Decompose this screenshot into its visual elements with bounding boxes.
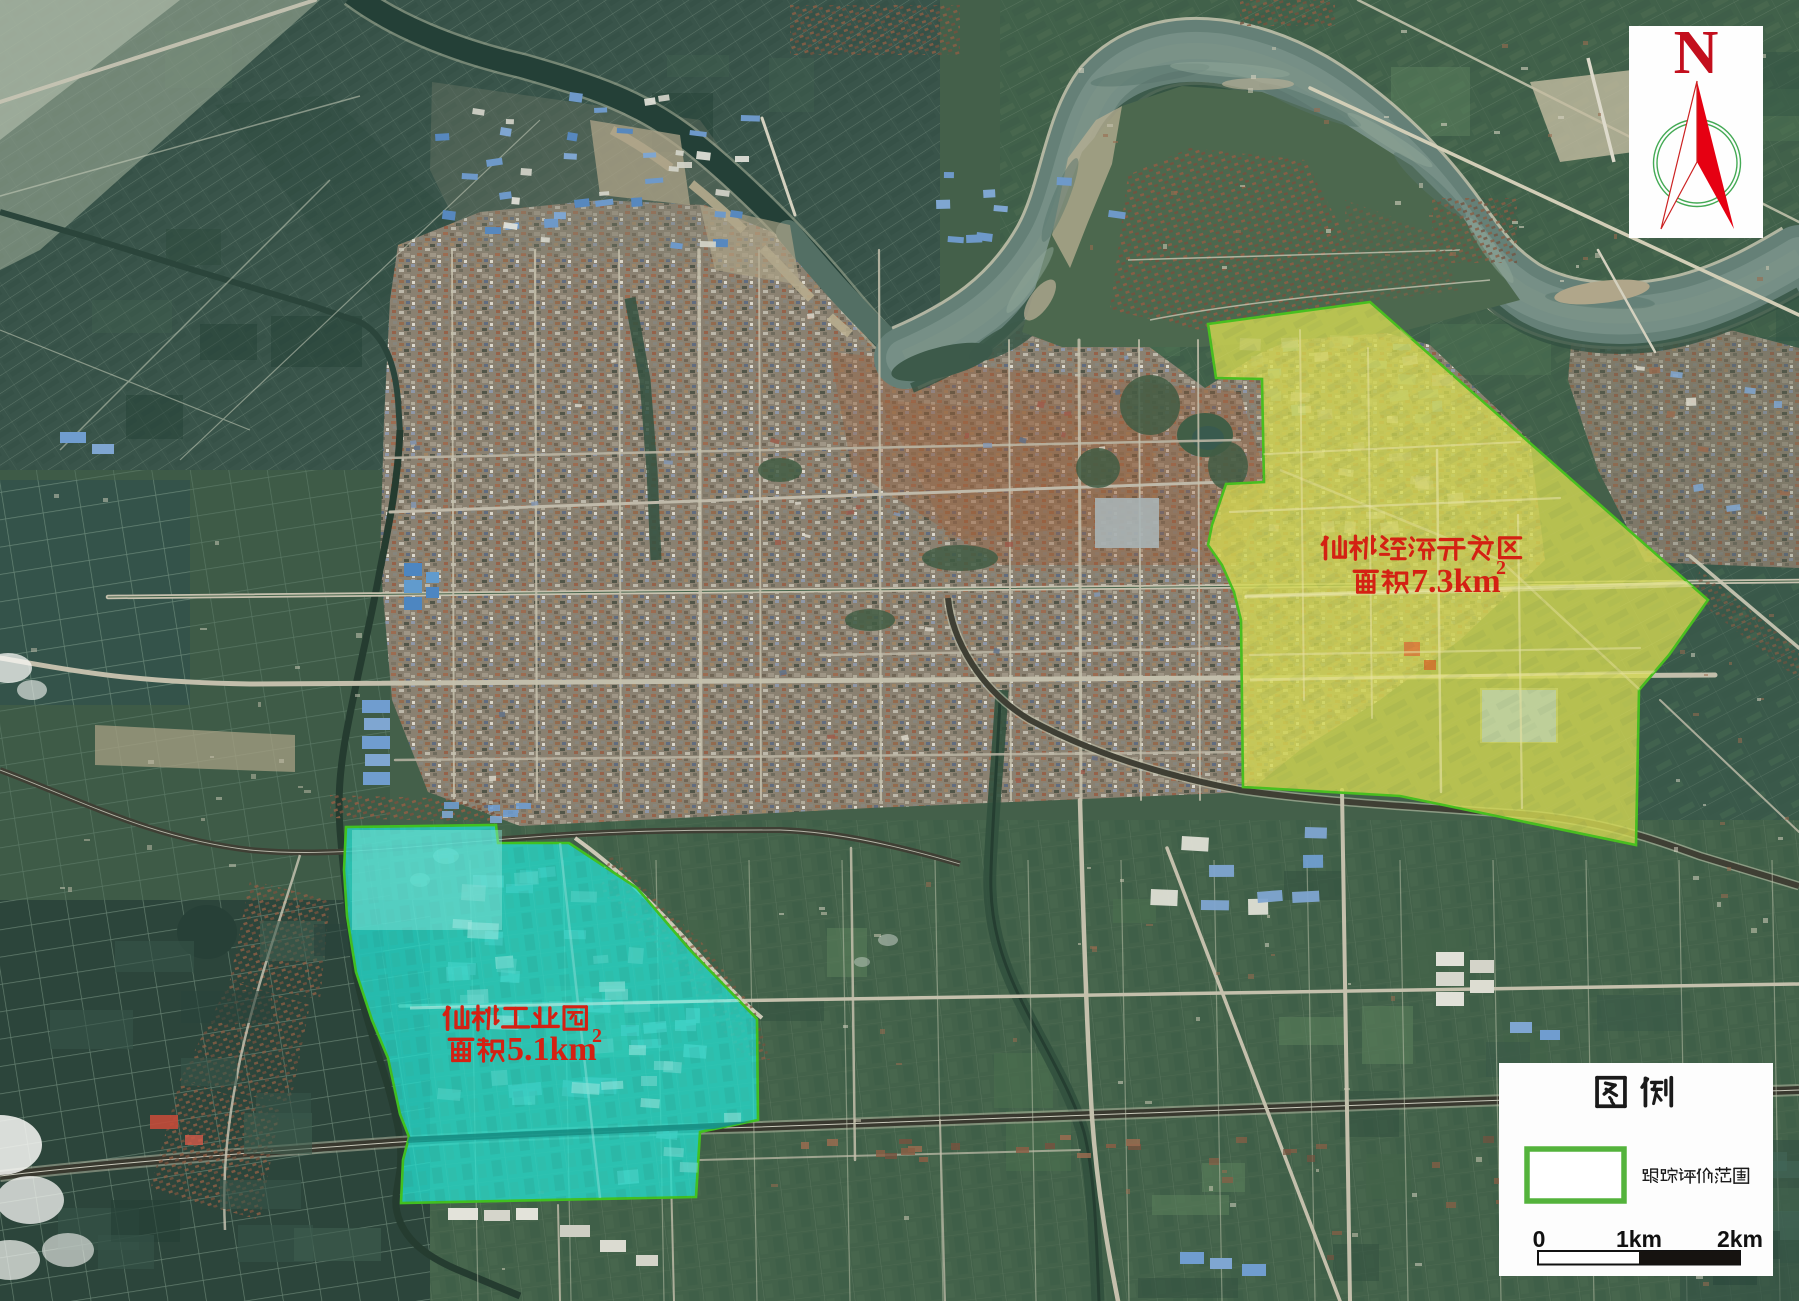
svg-text:N: N: [1674, 19, 1719, 87]
svg-text:1km: 1km: [1616, 1226, 1662, 1252]
svg-text:2km: 2km: [1717, 1226, 1763, 1252]
svg-text:0: 0: [1533, 1226, 1546, 1252]
